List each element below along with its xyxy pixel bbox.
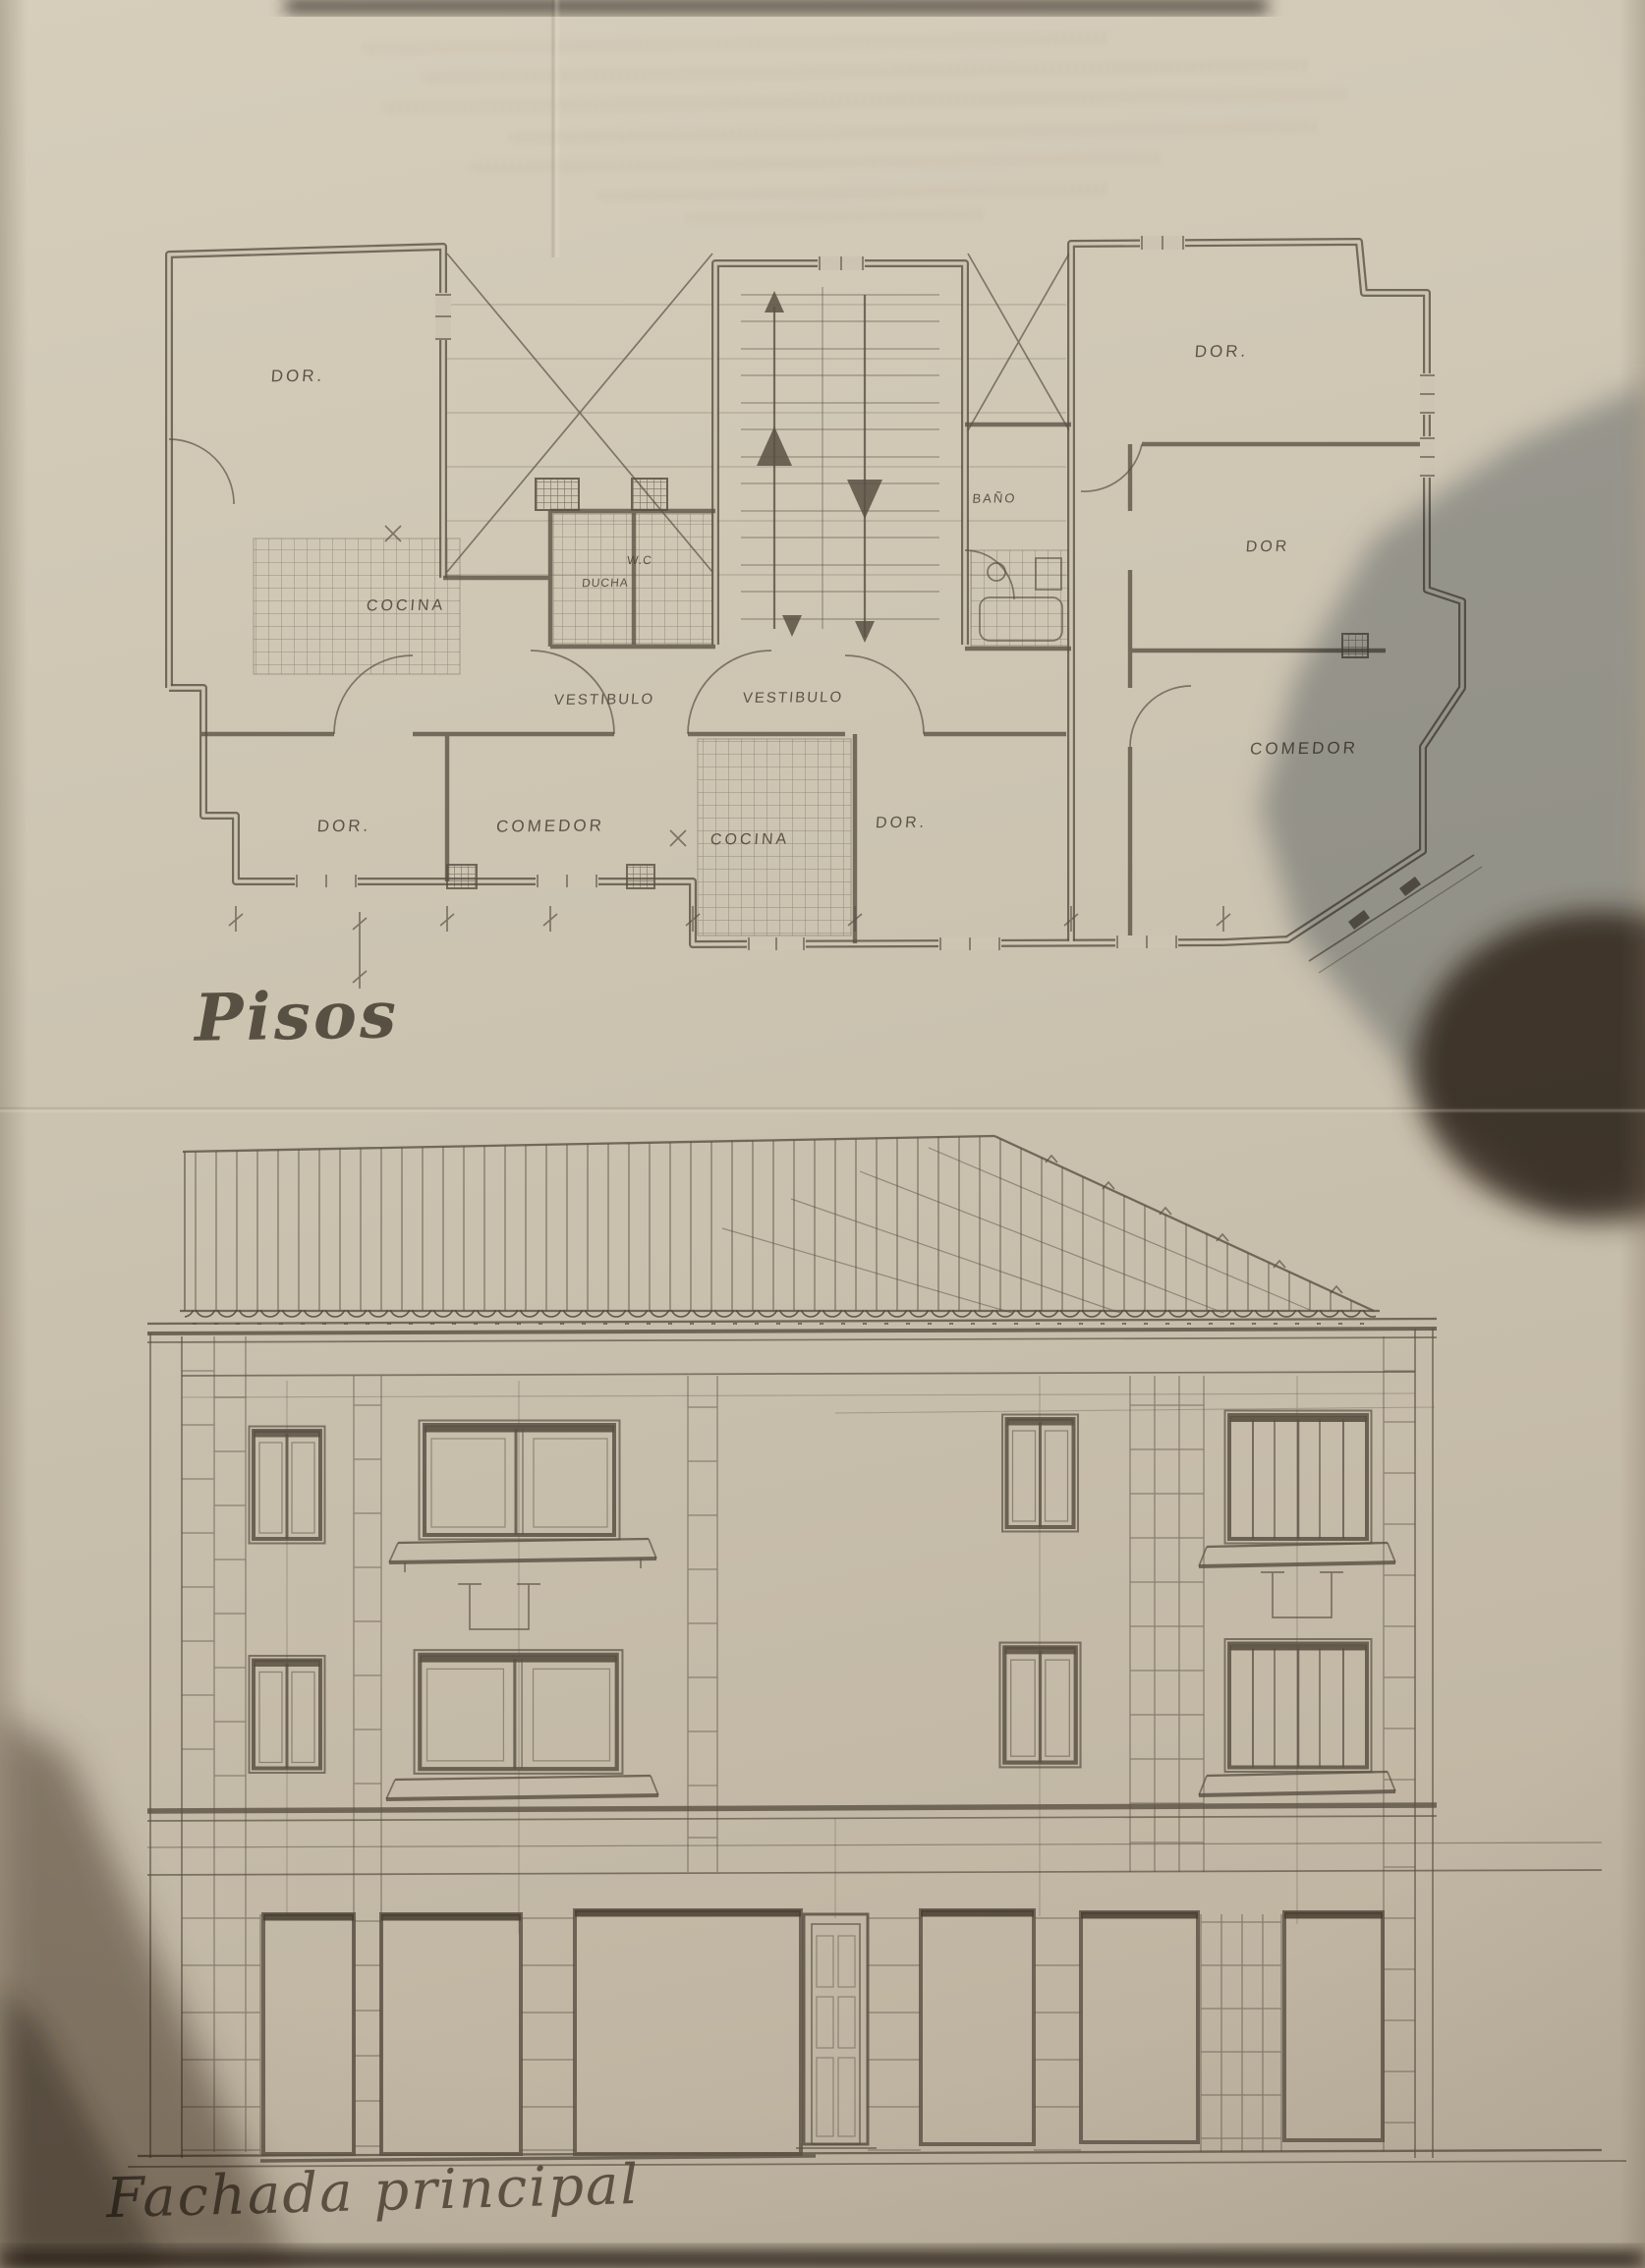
ground-floor: [128, 1805, 1626, 2167]
room-label-vestibulo-right: VESTIBULO: [742, 689, 844, 707]
roof: [180, 1136, 1380, 1325]
plan-title: Pisos: [194, 976, 399, 1056]
stair-up-arrow: [757, 426, 792, 466]
room-label-dor-bottom-right: DOR.: [875, 815, 927, 833]
room-label-ducha: DUCHA: [582, 576, 630, 590]
room-label-dor-top-right: DOR.: [1194, 342, 1249, 363]
section-brackets: [458, 1572, 1343, 1629]
facade-elevation: [128, 1136, 1626, 2167]
room-label-bano: BAÑO: [972, 490, 1017, 505]
facade-windows: [250, 1411, 1372, 1774]
room-label-dor-top-left: DOR.: [270, 367, 325, 387]
room-label-dor-right-mid: DOR: [1245, 539, 1290, 556]
room-label-dor-bottom-left: DOR.: [316, 817, 371, 837]
room-label-cocina-left: COCINA: [366, 597, 446, 616]
staircase: [741, 287, 939, 643]
blueprint-linework: [0, 0, 1645, 2268]
room-label-vestibulo-left: VESTIBULO: [553, 691, 655, 709]
room-label-cocina-bottom: COCINA: [709, 831, 790, 850]
room-label-comedor-bottom: COMEDOR: [495, 816, 604, 836]
stair-down-arrow: [847, 480, 882, 519]
room-label-comedor-right: COMEDOR: [1249, 738, 1358, 759]
entrance-door: [796, 1914, 877, 2148]
room-label-wc: W.C: [627, 553, 653, 567]
photographed-blueprint-sheet: DOR. COCINA W.C DUCHA BAÑO VESTIBULO VES…: [0, 0, 1645, 2268]
